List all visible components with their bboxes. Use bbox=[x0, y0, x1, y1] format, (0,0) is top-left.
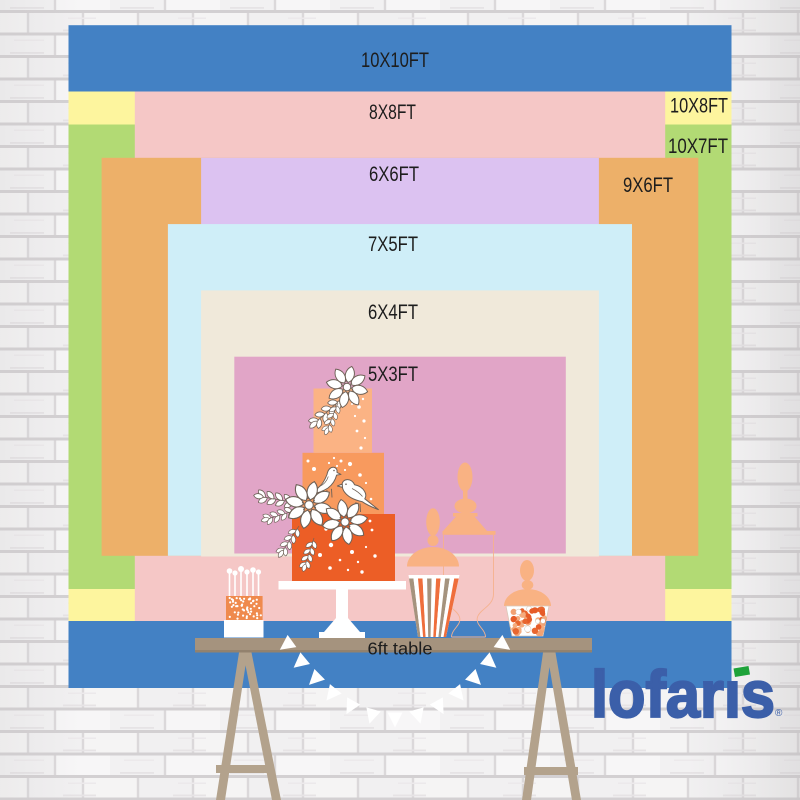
svg-text:6ft table: 6ft table bbox=[368, 639, 433, 659]
svg-text:6X6FT: 6X6FT bbox=[369, 163, 419, 186]
svg-text:10X8FT: 10X8FT bbox=[670, 95, 728, 118]
svg-text:10X10FT: 10X10FT bbox=[361, 49, 429, 72]
svg-text:5X3FT: 5X3FT bbox=[368, 363, 418, 386]
svg-text:10X7FT: 10X7FT bbox=[668, 135, 728, 158]
svg-text:7X5FT: 7X5FT bbox=[368, 233, 418, 256]
svg-text:®: ® bbox=[775, 708, 783, 719]
svg-text:9X6FT: 9X6FT bbox=[623, 174, 673, 197]
svg-text:6X4FT: 6X4FT bbox=[368, 301, 418, 324]
svg-text:8X8FT: 8X8FT bbox=[369, 101, 416, 124]
